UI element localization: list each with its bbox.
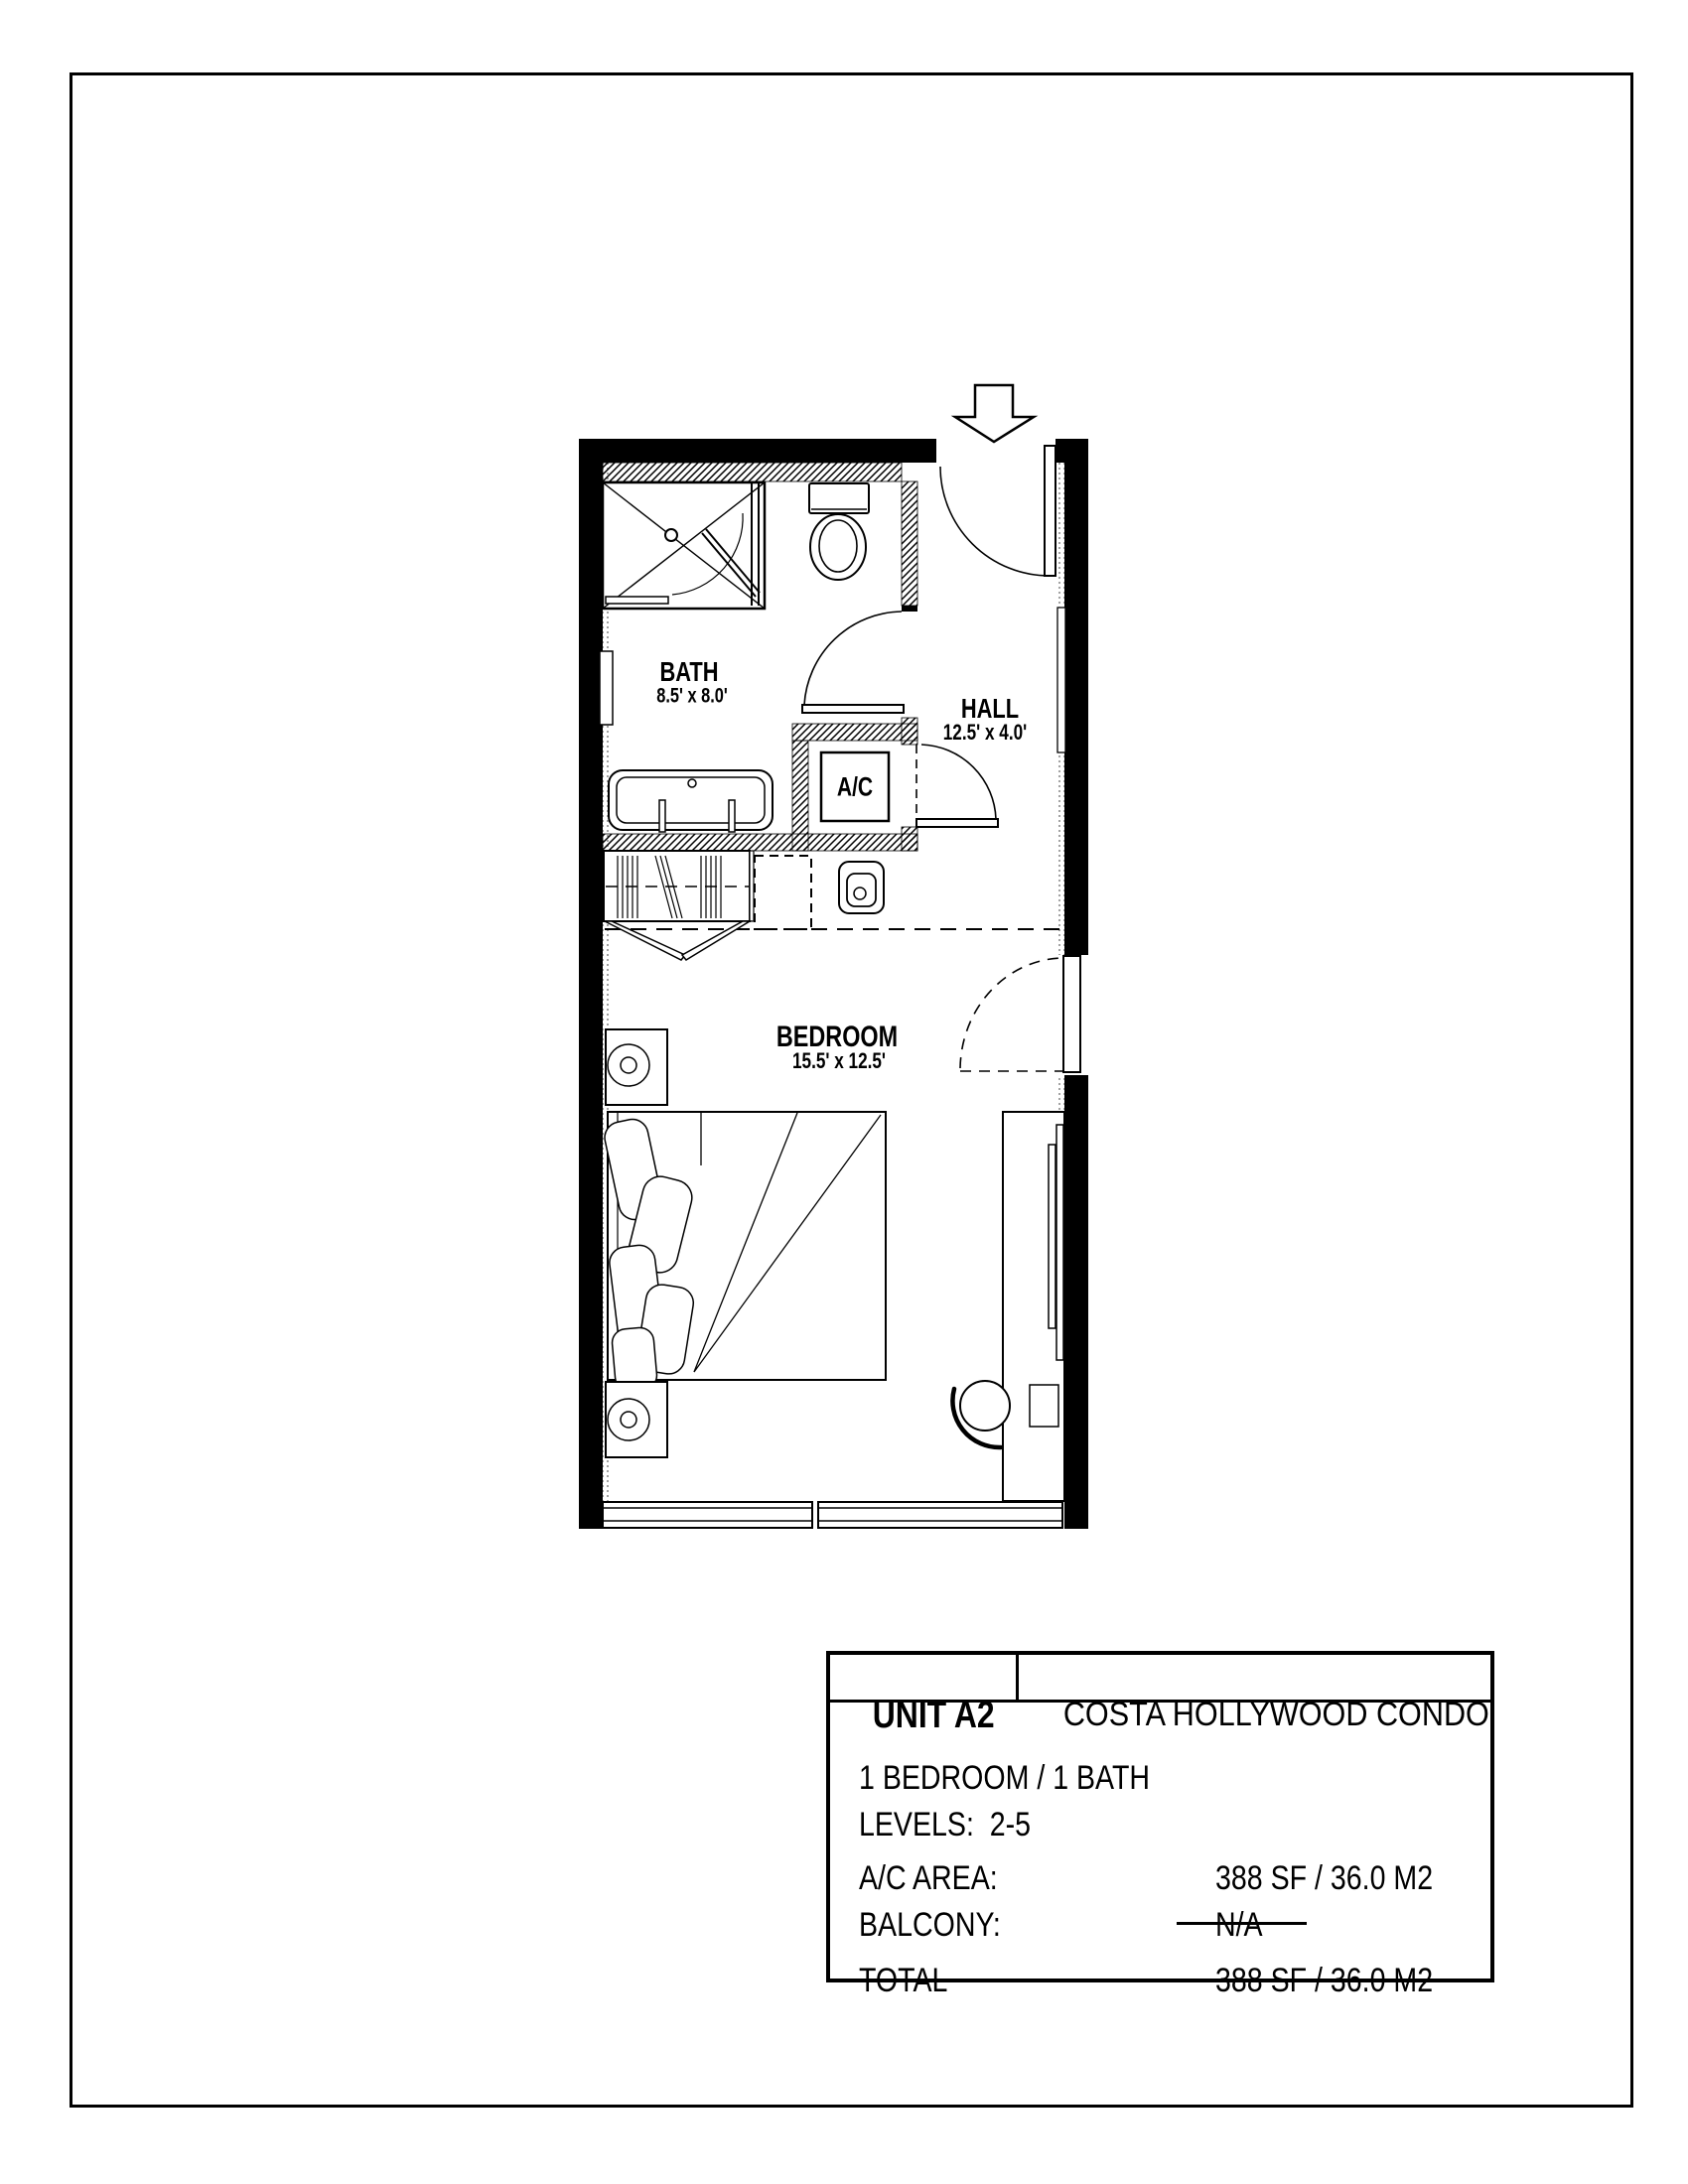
floor-plan-sheet: { "floor_plan": { "rooms": { "bath": {"n… — [0, 0, 1688, 2184]
total-sum-line — [1177, 1922, 1307, 1925]
total-label: TOTAL — [840, 1930, 964, 1997]
bed — [602, 1112, 886, 1392]
project-name: COSTA HOLLYWOOD CONDO — [1021, 1664, 1491, 1731]
windows — [603, 1502, 1062, 1528]
wall-niche — [600, 651, 613, 725]
bedroom-dims-label: 15.5' x 12.5' — [792, 1050, 886, 1072]
desk — [1003, 1112, 1064, 1501]
entry-arrow-icon — [955, 385, 1034, 442]
bath-door — [802, 612, 904, 713]
hall-dims-label: 12.5' x 4.0' — [943, 722, 1027, 744]
bedroom-dashed-door — [960, 956, 1080, 1072]
unit-number: UNIT A2 — [830, 1659, 1017, 1734]
ac-closet-door — [916, 745, 998, 827]
chair — [952, 1381, 1010, 1447]
bathtub — [609, 770, 773, 832]
closet — [604, 851, 754, 960]
ac-closet-label: A/C — [837, 774, 873, 801]
nightstand-lamp-bottom — [606, 1382, 667, 1457]
washer-dryer — [755, 856, 811, 929]
hall-room-label: HALL — [961, 695, 1019, 723]
nightstand-lamp-top — [606, 1029, 667, 1105]
bath-room-label: BATH — [659, 658, 718, 686]
shower — [603, 482, 765, 609]
entry-door — [940, 446, 1055, 576]
bath-dims-label: 8.5' x 8.0' — [656, 686, 728, 707]
total-value: 388 SF / 36.0 M2 — [1196, 1930, 1475, 1997]
toilet — [809, 483, 869, 580]
hall-wall-panel — [1057, 608, 1065, 752]
sink — [839, 862, 884, 913]
